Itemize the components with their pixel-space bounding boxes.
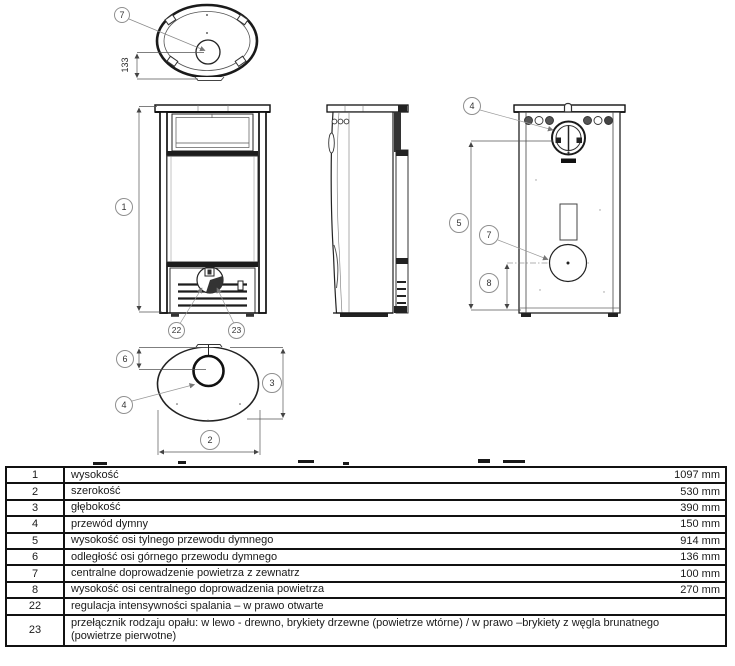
callout-air-inlet: 7 [479, 225, 499, 245]
top-view-drawing [129, 5, 257, 81]
row-description: szerokość [71, 485, 121, 498]
row-description: przełącznik rodzaju opału: w lewo - drew… [71, 617, 686, 643]
row-description: centralne doprowadzenie powietrza z zewn… [71, 567, 300, 580]
table-row: 5 wysokość osi tylnego przewodu dymnego9… [7, 534, 725, 550]
row-value: 530 mm [672, 486, 720, 498]
row-value: 150 mm [672, 518, 720, 530]
dimension-label-133: 133 [121, 57, 133, 73]
row-number: 3 [7, 501, 65, 515]
table-row: 7 centralne doprowadzenie powietrza z ze… [7, 566, 725, 582]
stove-spec-sheet: 7 133 1 22 23 4 5 7 8 6 4 3 2 1 wysokość… [0, 0, 735, 666]
row-number: 1 [7, 468, 65, 482]
row-number: 5 [7, 534, 65, 548]
row-number: 23 [7, 616, 65, 645]
callout-air-control: 22 [168, 322, 185, 339]
row-description: regulacja intensywności spalania – w pra… [71, 600, 324, 613]
callout-top-flue: 7 [114, 7, 130, 23]
side-view-drawing [327, 105, 408, 318]
row-number: 6 [7, 550, 65, 564]
row-description: odległość osi górnego przewodu dymnego [71, 551, 277, 564]
row-value: 136 mm [672, 551, 720, 563]
table-row: 3 głębokość390 mm [7, 501, 725, 517]
row-description: wysokość [71, 469, 119, 482]
spec-table: 1 wysokość1097 mm 2 szerokość530 mm 3 gł… [5, 466, 727, 647]
row-value: 270 mm [672, 584, 720, 596]
callout-flue-height: 5 [449, 213, 469, 233]
table-row: 22 regulacja intensywności spalania – w … [7, 599, 725, 615]
row-value: 914 mm [672, 535, 720, 547]
row-number: 7 [7, 566, 65, 580]
callout-flue-offset: 6 [116, 350, 134, 368]
technical-drawings: 7 133 1 22 23 4 5 7 8 6 4 3 2 [0, 0, 735, 460]
table-row: 23 przełącznik rodzaju opału: w lewo - d… [7, 616, 725, 645]
table-row: 2 szerokość530 mm [7, 484, 725, 500]
table-row: 4 przewód dymny150 mm [7, 517, 725, 533]
callout-fuel-switch: 23 [228, 322, 245, 339]
table-row: 8 wysokość osi centralnego doprowadzenia… [7, 583, 725, 599]
callout-front-height: 1 [115, 198, 133, 216]
callout-depth: 3 [262, 373, 282, 393]
row-number: 8 [7, 583, 65, 597]
row-description: przewód dymny [71, 518, 148, 531]
row-description: głębokość [71, 501, 121, 514]
front-view-drawing [139, 105, 270, 324]
callout-bottom-flue: 4 [115, 396, 133, 414]
callout-width: 2 [200, 430, 220, 450]
row-value: 1097 mm [666, 469, 720, 481]
drawing-linework [0, 0, 735, 460]
row-number: 22 [7, 599, 65, 613]
row-description: wysokość osi tylnego przewodu dymnego [71, 534, 273, 547]
callout-back-flue: 4 [463, 97, 481, 115]
row-description: wysokość osi centralnego doprowadzenia p… [71, 583, 324, 596]
row-value: 100 mm [672, 568, 720, 580]
row-number: 4 [7, 517, 65, 531]
table-row: 6 odległość osi górnego przewodu dymnego… [7, 550, 725, 566]
row-number: 2 [7, 484, 65, 498]
row-value: 390 mm [672, 502, 720, 514]
table-row: 1 wysokość1097 mm [7, 468, 725, 484]
callout-air-inlet-height: 8 [479, 273, 499, 293]
